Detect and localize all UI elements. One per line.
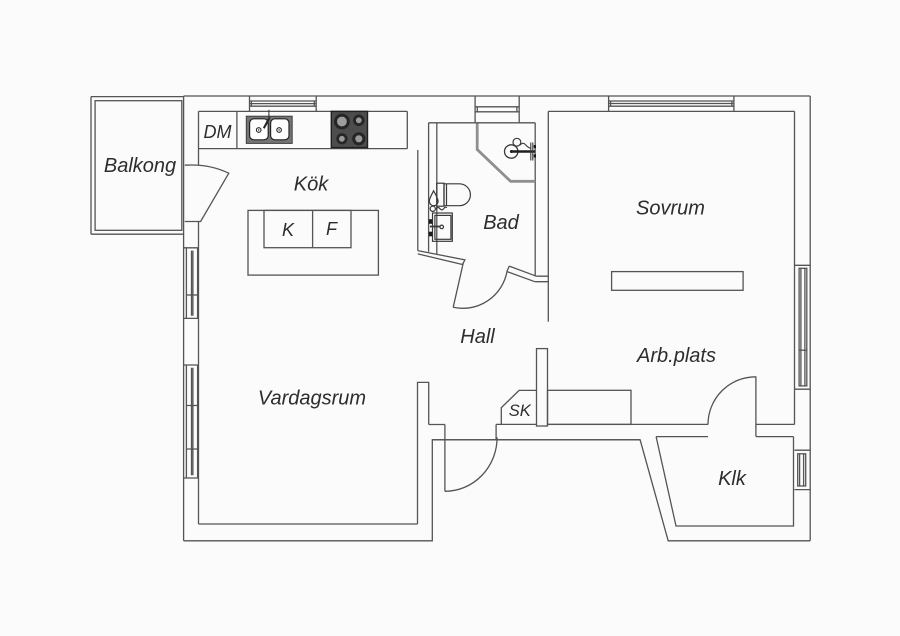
svg-text:F: F: [326, 219, 338, 239]
svg-text:Klk: Klk: [718, 468, 747, 490]
svg-text:Kök: Kök: [294, 174, 329, 196]
svg-text:Hall: Hall: [460, 326, 495, 348]
svg-text:DM: DM: [204, 122, 232, 142]
svg-text:Balkong: Balkong: [104, 155, 176, 177]
svg-text:K: K: [282, 220, 295, 240]
svg-text:SK: SK: [509, 402, 532, 420]
svg-text:Bad: Bad: [483, 212, 519, 234]
svg-text:Vardagsrum: Vardagsrum: [258, 388, 366, 410]
svg-text:Arb.plats: Arb.plats: [636, 345, 716, 367]
svg-text:Sovrum: Sovrum: [636, 198, 705, 220]
